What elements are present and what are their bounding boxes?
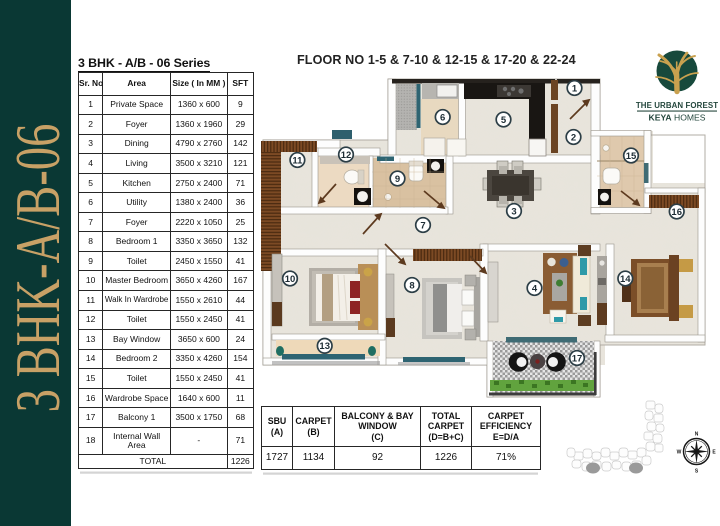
svg-text:6: 6 <box>440 112 445 123</box>
svg-text:W: W <box>677 450 682 456</box>
svg-text:5: 5 <box>501 115 507 126</box>
svg-text:8: 8 <box>409 280 414 291</box>
svg-text:13: 13 <box>319 341 330 352</box>
svg-text:N: N <box>695 432 699 438</box>
svg-text:THE URBAN FOREST: THE URBAN FOREST <box>636 101 718 110</box>
svg-text:KEYA HOMES: KEYA HOMES <box>649 113 706 123</box>
svg-text:9: 9 <box>395 174 400 185</box>
svg-text:2: 2 <box>571 132 576 143</box>
svg-text:15: 15 <box>626 151 637 162</box>
svg-text:16: 16 <box>671 207 682 218</box>
svg-text:S: S <box>695 469 699 475</box>
svg-text:E: E <box>712 450 716 456</box>
svg-text:3: 3 <box>511 206 516 217</box>
svg-text:17: 17 <box>572 353 583 364</box>
svg-text:10: 10 <box>285 274 296 285</box>
svg-text:7: 7 <box>420 220 425 231</box>
svg-text:14: 14 <box>620 274 631 285</box>
svg-text:1: 1 <box>572 83 578 94</box>
svg-text:11: 11 <box>292 155 303 166</box>
svg-text:4: 4 <box>532 283 538 294</box>
svg-text:12: 12 <box>341 150 352 161</box>
